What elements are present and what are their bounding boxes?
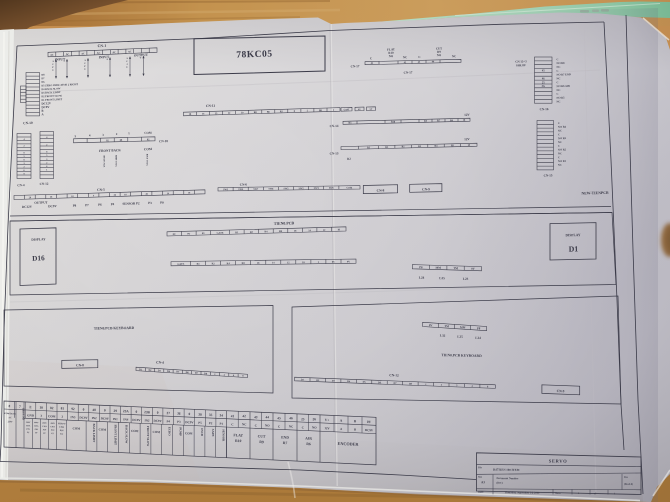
svg-text:L23: L23	[463, 277, 469, 281]
svg-text:41: 41	[231, 414, 235, 418]
svg-text:CN-17: CN-17	[403, 70, 412, 74]
svg-text:42: 42	[242, 414, 246, 418]
svg-text:Sheet: Sheet	[555, 492, 561, 495]
svg-text:40: 40	[92, 408, 96, 412]
svg-text:AC: AC	[112, 51, 116, 54]
svg-text:C: C	[370, 56, 372, 60]
svg-text:AIR: AIR	[305, 436, 312, 440]
svg-text:TIEN0.PCB KEYBOARD: TIEN0.PCB KEYBOARD	[441, 353, 482, 358]
svg-text:0V: 0V	[367, 420, 372, 424]
svg-text:TM: TM	[444, 324, 449, 328]
svg-text:NO R8: NO R8	[556, 62, 565, 65]
svg-text:C: C	[558, 122, 560, 125]
svg-text:PIN: PIN	[60, 430, 64, 432]
svg-text:V+: V+	[325, 418, 330, 422]
svg-text:NC: NC	[558, 152, 562, 155]
svg-text:CN-13: CN-13	[329, 151, 338, 155]
svg-text:CN-1: CN-1	[98, 44, 107, 48]
svg-text:400V: 400V	[34, 422, 39, 424]
svg-text:NO: NO	[312, 425, 317, 429]
svg-text:25: 25	[301, 417, 305, 421]
svg-text:CN-10: CN-10	[23, 121, 33, 125]
svg-text:C: C	[231, 422, 233, 426]
svg-text:AC: AC	[66, 53, 70, 56]
svg-text:Date:: Date:	[478, 491, 484, 494]
svg-text:12V: 12V	[324, 426, 330, 430]
svg-text:P7: P7	[85, 203, 89, 207]
svg-text:DC9V: DC9V	[365, 428, 374, 432]
svg-text:P0: P0	[160, 201, 164, 205]
svg-text:SW4: SW4	[238, 188, 244, 191]
svg-text:SW5: SW5	[284, 187, 290, 190]
svg-text:CN-5: CN-5	[97, 188, 105, 192]
svg-text:SW6: SW6	[329, 187, 335, 190]
svg-text:TM: TM	[453, 266, 458, 270]
svg-text:DC9V: DC9V	[101, 416, 110, 420]
svg-text:DC9V: DC9V	[185, 420, 194, 424]
svg-text:44: 44	[265, 415, 269, 419]
svg-text:SW8: SW8	[268, 188, 274, 191]
svg-text:C: C	[558, 156, 560, 159]
svg-text:AC: AC	[128, 50, 132, 53]
svg-text:SERVO: SERVO	[58, 423, 66, 425]
svg-text:IN4: IN4	[123, 417, 129, 421]
svg-text:38: 38	[198, 413, 202, 417]
svg-text:CN-15: CN-15	[543, 173, 552, 177]
svg-text:IN2: IN2	[92, 416, 98, 420]
svg-text:PUMP: PUMP	[179, 427, 183, 436]
svg-text:GATE: GATE	[177, 263, 184, 266]
svg-text:INPUT: INPUT	[99, 55, 110, 59]
svg-text:NC: NC	[289, 424, 294, 428]
svg-text:CN-12: CN-12	[39, 182, 48, 186]
svg-text:DISPLAY: DISPLAY	[565, 233, 581, 237]
svg-text:C: C	[556, 58, 558, 61]
svg-text:NO R7 END: NO R7 END	[556, 73, 570, 76]
svg-text:NO R6 AIR: NO R6 AIR	[556, 85, 570, 88]
svg-text:2: 2	[23, 167, 24, 169]
svg-text:AC: AC	[8, 416, 12, 419]
svg-text:CUT: CUT	[258, 434, 266, 438]
svg-text:2: 2	[46, 144, 47, 146]
svg-text:Size: Size	[478, 476, 482, 479]
svg-text:45: 45	[277, 416, 281, 420]
svg-text:10: 10	[39, 406, 43, 410]
svg-text:NC: NC	[556, 89, 560, 92]
svg-text:A: A	[63, 60, 65, 63]
svg-text:L32: L32	[440, 334, 446, 338]
svg-text:0V: 0V	[347, 260, 350, 263]
svg-text:COM: COM	[346, 186, 353, 189]
svg-text:L25: L25	[439, 276, 445, 280]
svg-text:TIEN0.PCB KEYBOARD: TIEN0.PCB KEYBOARD	[94, 326, 135, 331]
svg-text:CN-6: CN-6	[240, 183, 248, 187]
svg-text:CN-16: CN-16	[539, 107, 548, 111]
svg-text:LG: LG	[60, 433, 64, 435]
svg-text:C: C	[418, 55, 420, 59]
svg-text:SERVO: SERVO	[549, 458, 568, 463]
svg-text:GND: GND	[27, 413, 35, 417]
svg-text:C: C	[556, 70, 558, 73]
svg-text:END: END	[281, 435, 289, 439]
svg-text:CHA: CHA	[50, 425, 55, 428]
svg-text:NC: NC	[242, 422, 247, 426]
svg-text:NC: NC	[452, 54, 456, 58]
svg-text:of: of	[594, 492, 596, 495]
svg-text:B: B	[354, 427, 356, 431]
svg-text:COM: COM	[98, 427, 106, 431]
svg-text:R6: R6	[306, 442, 311, 446]
svg-text:MM: MM	[435, 266, 441, 270]
svg-text:CN-9: CN-9	[557, 389, 565, 393]
svg-text:CN-12: CN-12	[389, 373, 399, 377]
svg-text:NO R3: NO R3	[558, 137, 567, 140]
svg-text:Thursday, September 14, 2000: Thursday, September 14, 2000	[505, 491, 541, 495]
svg-text:35: 35	[209, 413, 213, 417]
svg-text:SSR 8V: SSR 8V	[516, 63, 527, 67]
svg-text:R2: R2	[347, 157, 351, 161]
svg-text:TIEN0.PCB: TIEN0.PCB	[274, 221, 295, 226]
svg-text:92: 92	[71, 407, 75, 411]
svg-text:C: C	[302, 425, 304, 429]
svg-text:COM: COM	[131, 429, 139, 433]
svg-text:78KC05: 78KC05	[236, 49, 273, 60]
svg-text:DC9V: DC9V	[153, 419, 162, 423]
svg-text:C: C	[255, 423, 257, 427]
svg-text:GATE: GATE	[217, 232, 224, 235]
svg-text:NO: NO	[265, 423, 270, 427]
svg-text:COM: COM	[152, 430, 160, 434]
svg-text:CN-4: CN-4	[17, 183, 25, 187]
svg-text:COM: COM	[144, 131, 152, 135]
svg-text:NC: NC	[403, 55, 407, 59]
svg-text:CN-4: CN-4	[156, 360, 164, 364]
svg-text:P5: P5	[198, 421, 202, 425]
svg-text:ECHO: ECHO	[168, 427, 172, 437]
svg-text:R7: R7	[283, 441, 288, 445]
svg-text:CN-11: CN-11	[206, 104, 216, 108]
svg-text:COM: COM	[72, 426, 80, 430]
svg-text:0V: 0V	[332, 261, 335, 264]
svg-text:R9: R9	[259, 440, 264, 444]
svg-text:SW1: SW1	[223, 188, 229, 191]
svg-text:P6: P6	[98, 203, 102, 207]
svg-text:220V: 220V	[8, 421, 13, 423]
svg-text:CN-17: CN-17	[350, 64, 359, 68]
svg-text:COM: COM	[144, 147, 153, 151]
svg-text:D47TIEN 100 ITEM: D47TIEN 100 ITEM	[493, 468, 520, 472]
svg-text:FRONT LIMIT: FRONT LIMIT	[114, 425, 118, 445]
svg-text:DC9V: DC9V	[132, 418, 141, 422]
svg-text:DC12V: DC12V	[22, 205, 33, 209]
svg-text:P1: P1	[219, 422, 223, 426]
svg-text:2: 2	[23, 146, 24, 148]
svg-text:Document Number: Document Number	[496, 477, 519, 480]
svg-text:CHA: CHA	[59, 426, 64, 429]
svg-text:P3: P3	[177, 420, 181, 424]
svg-text:CN-14: CN-14	[329, 124, 338, 128]
svg-text:IN1: IN1	[113, 417, 119, 421]
svg-text:CHA: CHA	[34, 425, 39, 428]
svg-text:81: 81	[61, 406, 65, 410]
svg-text:SW2: SW2	[299, 187, 305, 190]
svg-text:CN-18: CN-18	[159, 139, 168, 143]
svg-text:P8: P8	[73, 204, 77, 208]
svg-text:R8A8 CN1A: R8A8 CN1A	[103, 156, 106, 168]
svg-text:P3: P3	[148, 201, 152, 205]
svg-text:L24: L24	[475, 336, 481, 340]
svg-text:CHA: CHA	[42, 425, 47, 428]
svg-text:C: C	[558, 145, 560, 148]
svg-text:NO: NO	[389, 54, 394, 58]
svg-text:D1: D1	[569, 244, 579, 253]
svg-text:CN-8: CN-8	[76, 363, 84, 367]
svg-text:0V: 0V	[187, 233, 190, 236]
svg-text:NO R4: NO R4	[558, 126, 567, 129]
svg-text:NC: NC	[558, 129, 562, 132]
svg-text:34: 34	[219, 413, 223, 417]
svg-text:2: 2	[46, 162, 47, 164]
svg-text:C: C	[556, 93, 558, 96]
svg-text:0V: 0V	[202, 232, 205, 235]
svg-text:3A: 3A	[542, 85, 545, 88]
svg-text:INCH: INCH	[200, 428, 204, 437]
svg-text:BACK SLOW: BACK SLOW	[125, 425, 129, 443]
svg-text:SW3: SW3	[314, 187, 320, 190]
svg-text:SENSOR P2: SENSOR P2	[122, 201, 140, 206]
svg-text:0V: 0V	[173, 233, 176, 236]
svg-text:12V: 12V	[464, 137, 470, 141]
svg-text:5V: 5V	[370, 109, 373, 111]
svg-text:26: 26	[312, 417, 316, 421]
svg-text:NC: NC	[556, 100, 560, 103]
svg-text:P4: P4	[111, 202, 115, 206]
svg-text:R10: R10	[235, 439, 242, 443]
svg-text:(Dec): (Dec)	[496, 482, 502, 485]
svg-text:C: C	[556, 81, 558, 84]
svg-text:DISPLAY: DISPLAY	[31, 237, 46, 242]
svg-text:File: File	[478, 466, 482, 469]
svg-text:V: V	[140, 57, 142, 60]
svg-text:82: 82	[50, 406, 54, 410]
svg-text:AC: AC	[50, 54, 54, 57]
svg-text:GROUND: GROUND	[22, 408, 25, 420]
svg-text:C: C	[278, 424, 280, 428]
svg-text:L24: L24	[419, 276, 425, 280]
svg-text:DC9V: DC9V	[79, 416, 88, 420]
svg-text:OUTPUT: OUTPUT	[34, 200, 48, 204]
svg-text:NC: NC	[558, 164, 562, 167]
svg-text:23B: 23B	[144, 410, 151, 414]
svg-text:L25: L25	[457, 335, 463, 339]
svg-text:V: V	[84, 68, 86, 71]
svg-text:NC: NC	[558, 141, 562, 144]
svg-text:MM: MM	[460, 325, 466, 329]
svg-text:NO R1: NO R1	[558, 160, 567, 163]
svg-text:NC: NC	[556, 66, 560, 69]
svg-text:NC: NC	[556, 77, 560, 80]
svg-text:IN2: IN2	[144, 418, 150, 422]
svg-text:ENCODER: ENCODER	[337, 441, 359, 447]
svg-text:NO: NO	[437, 53, 442, 57]
svg-text:SENSOR: SENSOR	[222, 429, 226, 442]
svg-text:V: V	[126, 66, 128, 69]
svg-text:V: V	[52, 69, 54, 72]
svg-text:P4: P4	[166, 419, 170, 423]
svg-text:AC: AC	[81, 52, 85, 55]
svg-text:COM: COM	[48, 414, 56, 418]
svg-text:A3: A3	[481, 480, 485, 484]
svg-text:400V: 400V	[50, 423, 55, 425]
svg-text:46: 46	[289, 416, 293, 420]
svg-text:A: A	[106, 58, 108, 61]
svg-text:SAFE: SAFE	[211, 429, 215, 437]
svg-text:COM: COM	[185, 431, 193, 435]
svg-text:23A: 23A	[123, 409, 130, 413]
svg-text:NEW-TIENPCB: NEW-TIENPCB	[581, 191, 609, 196]
svg-text:IN5: IN5	[70, 415, 76, 419]
svg-text:C: C	[558, 133, 560, 136]
svg-text:FRONT SLOW: FRONT SLOW	[146, 426, 150, 446]
svg-text:6V: 6V	[358, 109, 361, 111]
svg-text:36: 36	[177, 412, 181, 416]
svg-text:43: 43	[254, 415, 258, 419]
svg-text:12V: 12V	[464, 113, 470, 117]
svg-text:(Rev0.0): (Rev0.0)	[624, 483, 633, 486]
svg-text:37: 37	[166, 411, 170, 415]
svg-text:D16: D16	[32, 254, 45, 262]
svg-text:CN-9: CN-9	[422, 187, 430, 191]
svg-text:SW7: SW7	[253, 188, 259, 191]
svg-text:R8C8 CN1A: R8C8 CN1A	[146, 154, 149, 166]
svg-text:29: 29	[113, 409, 117, 413]
svg-text:FLAT: FLAT	[233, 433, 243, 437]
svg-text:400V: 400V	[42, 423, 47, 425]
svg-text:1: 1	[46, 170, 47, 172]
svg-text:NO R2: NO R2	[558, 148, 567, 151]
svg-text:FRONT BACK: FRONT BACK	[99, 148, 121, 153]
svg-text:CHA: CHA	[26, 424, 31, 427]
svg-text:DC9V: DC9V	[48, 204, 57, 208]
svg-text:R8B8 CN1A: R8B8 CN1A	[115, 155, 118, 167]
svg-text:CN-8: CN-8	[377, 189, 385, 193]
svg-text:GA9T: GA9T	[344, 108, 350, 111]
svg-text:400V: 400V	[26, 422, 31, 424]
svg-text:BACK LIMIT: BACK LIMIT	[92, 424, 96, 443]
svg-text:P2: P2	[209, 421, 213, 425]
svg-text:NO R5: NO R5	[556, 96, 565, 99]
